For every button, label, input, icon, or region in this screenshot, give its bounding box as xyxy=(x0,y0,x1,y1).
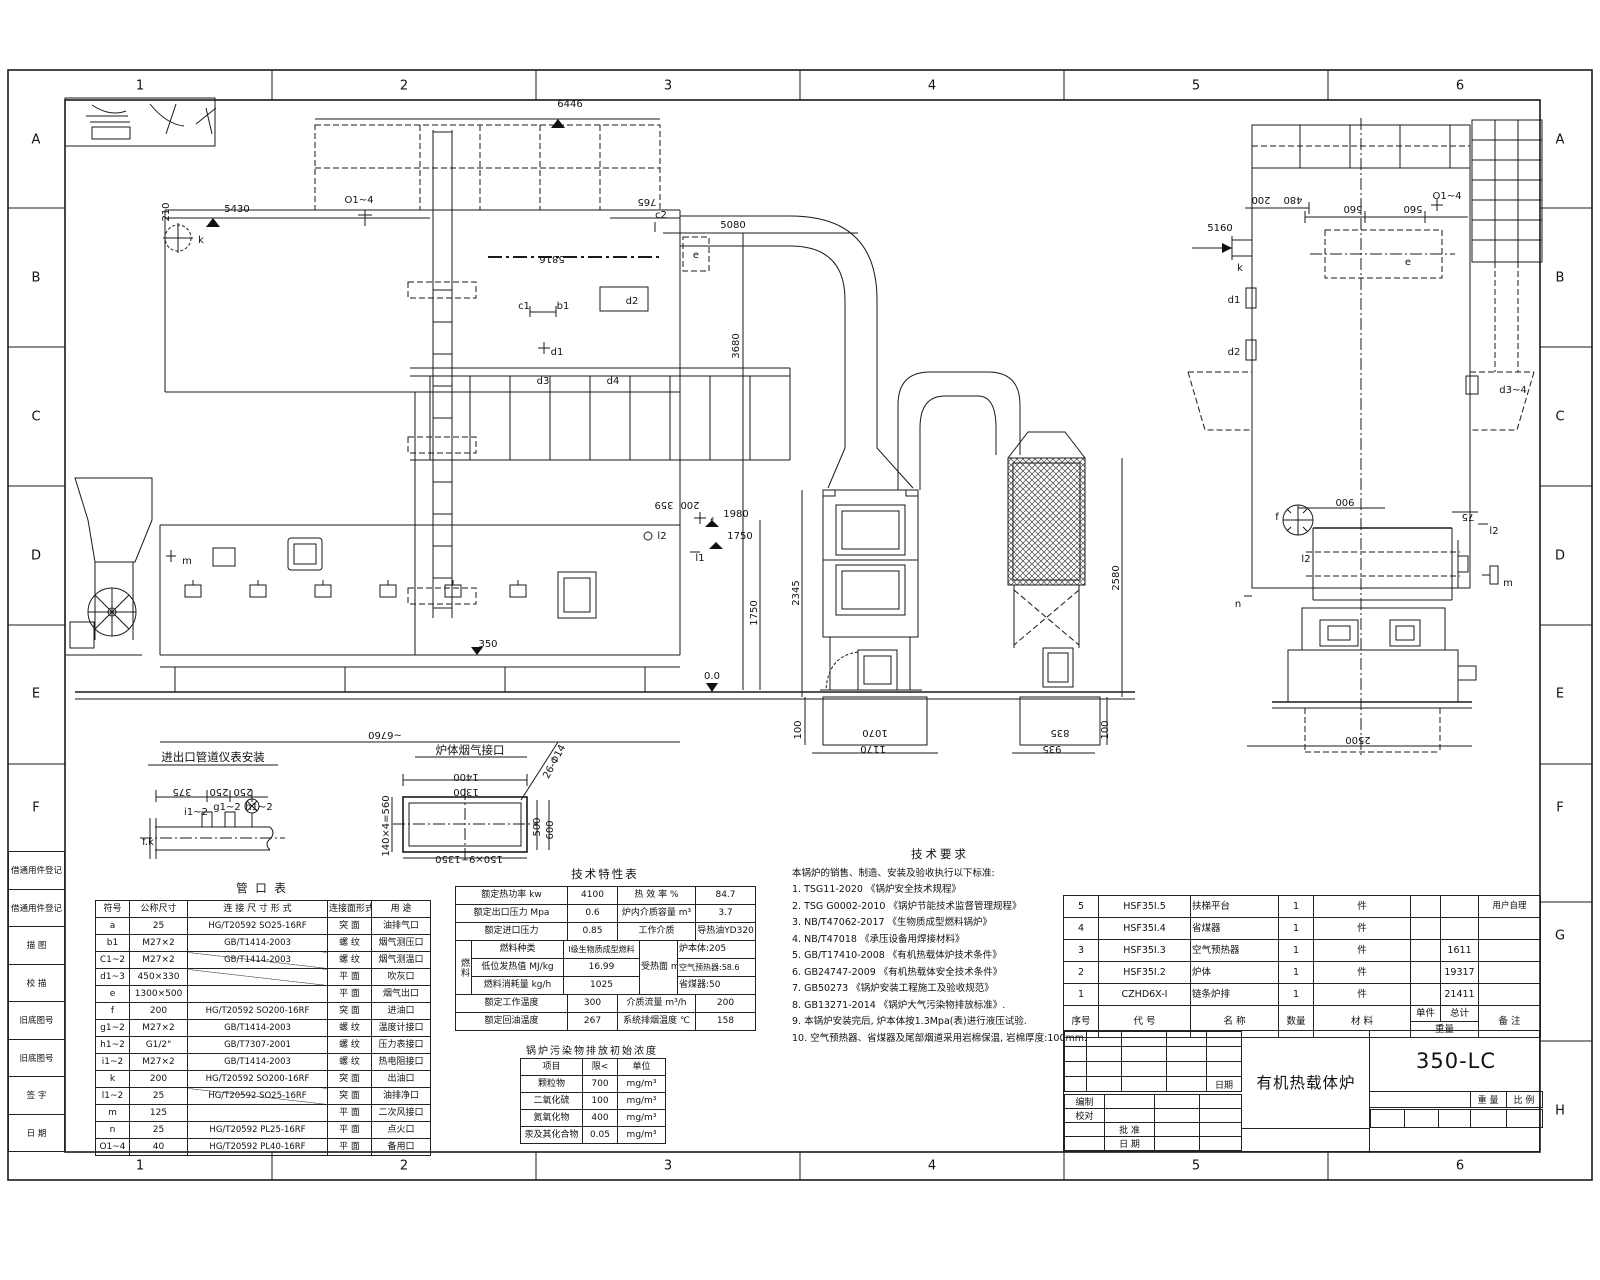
svg-text:2345: 2345 xyxy=(791,580,802,605)
grid-row: B xyxy=(32,271,41,286)
table-row: 颗粒物 700 mg/m³ xyxy=(521,1076,666,1093)
svg-text:k: k xyxy=(198,235,204,246)
bom-row: 2 HSF35I.2 炉体 1 件 19317 xyxy=(1064,962,1541,984)
svg-text:O1~4: O1~4 xyxy=(1433,191,1462,202)
weight-label: 重 量 xyxy=(1470,1092,1506,1108)
tech-req-item: 10. 空气预热器、省煤器及尾部烟道采用岩棉保温, 岩棉厚度:100mm. xyxy=(792,1031,1088,1048)
tech-req-title: 技术要求 xyxy=(792,846,1088,863)
svg-text:d1: d1 xyxy=(551,347,564,358)
svg-text:d4: d4 xyxy=(607,376,620,387)
svg-text:5816: 5816 xyxy=(539,253,564,264)
tech-req-item: 3. NB/T47062-2017 《生物质成型燃料锅炉》 xyxy=(792,915,1088,932)
svg-text:3680: 3680 xyxy=(731,333,742,358)
table-row: l1~2 25 HG/T20592 SO25-16RF 突 面 油排净口 xyxy=(96,1088,431,1105)
boiler-front-elevation xyxy=(1188,118,1542,758)
approved-label: 批 准 xyxy=(1105,1123,1155,1137)
svg-text:375: 375 xyxy=(172,786,191,797)
fuel-group-label: 燃料 xyxy=(456,941,472,995)
svg-text:75: 75 xyxy=(1462,511,1475,522)
svg-text:100: 100 xyxy=(793,720,804,739)
svg-text:f.k: f.k xyxy=(142,837,154,848)
spec-table: 额定热功率 kw4100热 效 率 %84.7 额定出口压力 Mpa0.6炉内介… xyxy=(455,886,756,1031)
svg-text:h1~2: h1~2 xyxy=(245,802,272,813)
tech-req-item: 5. GB/T17410-2008 《有机热载体炉技术条件》 xyxy=(792,948,1088,965)
margin-field: 借通用件登记 xyxy=(8,889,65,928)
emission-table: 项目 限< 单位 颗粒物 700 mg/m³ 二氧化硫 100 mg/m³ xyxy=(520,1058,666,1144)
tech-req-item: 2. TSG G0002-2010 《锅炉节能技术监督管理规程》 xyxy=(792,899,1088,916)
table-row: e 1300×500 平 面 烟气出口 xyxy=(96,986,431,1003)
table-row: n 25 HG/T20592 PL25-16RF 平 面 点火口 xyxy=(96,1122,431,1139)
svg-text:d3: d3 xyxy=(537,376,550,387)
date2-label: 日 期 xyxy=(1105,1137,1155,1151)
svg-text:1070: 1070 xyxy=(862,727,887,738)
svg-text:1400: 1400 xyxy=(453,771,478,782)
svg-text:359: 359 xyxy=(654,499,673,510)
svg-text:835: 835 xyxy=(1050,727,1069,738)
table-row: a 25 HG/T20592 SO25-16RF 突 面 油排气口 xyxy=(96,918,431,935)
drawing-sheet: 6446 5816 5430 210 k 765 O1~4 c2 c1 b1 d… xyxy=(0,0,1600,1280)
heating-surface-label: 受热面 m² xyxy=(640,941,678,995)
pipe-table: 符号 公称尺寸 连 接 尺 寸 形 式 连接面形式 用 途 a 25 HG/T2… xyxy=(95,900,431,1156)
svg-text:1750: 1750 xyxy=(727,531,752,542)
svg-text:b1: b1 xyxy=(557,301,570,312)
svg-text:炉体烟气接口: 炉体烟气接口 xyxy=(436,743,505,757)
grid-col: 5 xyxy=(1192,79,1200,94)
table-row: k 200 HG/T20592 SO200-16RF 突 面 出油口 xyxy=(96,1071,431,1088)
svg-text:~6760: ~6760 xyxy=(368,729,402,740)
svg-text:5430: 5430 xyxy=(224,204,249,215)
grid-col: 4 xyxy=(928,79,936,94)
svg-text:140×4=560: 140×4=560 xyxy=(381,795,392,856)
svg-text:l2: l2 xyxy=(1489,526,1498,537)
grid-row: D xyxy=(31,549,41,564)
svg-text:i1~2: i1~2 xyxy=(184,807,208,818)
svg-text:1980: 1980 xyxy=(723,509,748,520)
bom-table: 5 HSF35I.5 扶梯平台 1 件 用户自理 4 HSF35I.4 省煤器 … xyxy=(1063,895,1541,1038)
table-row: 汞及其化合物 0.05 mg/m³ xyxy=(521,1127,666,1144)
grid-row: E xyxy=(32,687,40,702)
svg-text:d3~4: d3~4 xyxy=(1499,385,1526,396)
spec-table-title: 技术特性表 xyxy=(571,866,639,882)
grid-row: A xyxy=(32,133,41,148)
table-row: O1~4 40 HG/T20592 PL40-16RF 平 面 备用口 xyxy=(96,1139,431,1156)
pipe-table-header: 符号 公称尺寸 连 接 尺 寸 形 式 连接面形式 用 途 xyxy=(96,901,431,918)
grid-col: 6 xyxy=(1456,79,1464,94)
svg-text:200: 200 xyxy=(680,499,699,510)
svg-text:350: 350 xyxy=(478,639,497,650)
technical-requirements: 技术要求 本锅炉的销售、制造、安装及验收执行以下标准: 1. TSG11-202… xyxy=(792,846,1088,1047)
table-row: b1 M27×2 GB/T1414-2003 螺 纹 烟气测压口 xyxy=(96,935,431,952)
table-row: C1~2 M27×2 GB/T1414-2003 螺 纹 烟气测温口 xyxy=(96,952,431,969)
svg-text:d2: d2 xyxy=(626,296,639,307)
tech-req-item: 6. GB24747-2009 《有机热载体安全技术条件》 xyxy=(792,965,1088,982)
svg-text:2500: 2500 xyxy=(1345,734,1370,745)
scale-label: 比 例 xyxy=(1506,1092,1542,1108)
svg-text:l2: l2 xyxy=(657,531,666,542)
table-row: m 125 平 面 二次风接口 xyxy=(96,1105,431,1122)
svg-text:O1~4: O1~4 xyxy=(345,195,374,206)
grid-col: 2 xyxy=(400,1159,408,1174)
flue-interface-detail xyxy=(392,742,558,862)
svg-text:500: 500 xyxy=(532,817,543,836)
svg-text:100: 100 xyxy=(1100,720,1111,739)
pipe-table-title: 管 口 表 xyxy=(236,880,288,896)
svg-text:200: 200 xyxy=(1251,194,1270,205)
tech-req-item: 4. NB/T47018 《承压设备用焊接材料》 xyxy=(792,932,1088,949)
svg-text:250: 250 xyxy=(209,786,228,797)
svg-text:e: e xyxy=(693,250,699,261)
svg-text:l1: l1 xyxy=(695,553,704,564)
grid-col: 3 xyxy=(664,1159,672,1174)
svg-text:6446: 6446 xyxy=(557,99,582,110)
table-row: g1~2 M27×2 GB/T1414-2003 螺 纹 温度计接口 xyxy=(96,1020,431,1037)
grid-row: A xyxy=(1556,133,1565,148)
svg-text:2580: 2580 xyxy=(1111,565,1122,590)
grid-row: D xyxy=(1555,549,1565,564)
svg-text:d2: d2 xyxy=(1228,347,1241,358)
margin-field: 描 图 xyxy=(8,926,65,965)
svg-text:d1: d1 xyxy=(1228,295,1241,306)
air-preheater xyxy=(820,490,927,745)
svg-text:150×9=1350: 150×9=1350 xyxy=(435,853,503,864)
svg-text:1300: 1300 xyxy=(453,786,478,797)
bom-row: 5 HSF35I.5 扶梯平台 1 件 用户自理 xyxy=(1064,896,1541,918)
svg-text:1750: 1750 xyxy=(749,600,760,625)
grid-col: 2 xyxy=(400,79,408,94)
bom-row: 4 HSF35I.4 省煤器 1 件 xyxy=(1064,918,1541,940)
svg-text:m: m xyxy=(1503,578,1513,589)
grid-row: F xyxy=(32,801,39,816)
margin-field: 借通用件登记 xyxy=(8,851,65,890)
svg-text:560: 560 xyxy=(1343,203,1362,214)
checked-label: 校对 xyxy=(1065,1109,1105,1123)
tech-req-item: 7. GB50273 《锅炉安装工程施工及验收规范》 xyxy=(792,981,1088,998)
margin-field: 旧底图号 xyxy=(8,1039,65,1078)
dimension-labels: 6446 5816 5430 210 k 765 O1~4 c2 c1 b1 d… xyxy=(142,99,1527,864)
svg-text:c2: c2 xyxy=(655,210,667,221)
svg-text:250: 250 xyxy=(233,786,252,797)
svg-text:900: 900 xyxy=(1335,496,1354,507)
prepared-label: 编制 xyxy=(1065,1095,1105,1109)
title-block: 日期 编制 校对 批 准 日 期 350-LC 有机热载体炉 重 量 比 例 xyxy=(1063,1030,1540,1152)
margin-field: 签 字 xyxy=(8,1076,65,1115)
grid-col: 1 xyxy=(136,79,144,94)
svg-text:765: 765 xyxy=(637,196,656,207)
table-row: 二氧化硫 100 mg/m³ xyxy=(521,1093,666,1110)
grid-col: 3 xyxy=(664,79,672,94)
svg-text:n: n xyxy=(1235,599,1241,610)
svg-text:f: f xyxy=(710,517,714,528)
svg-text:600: 600 xyxy=(545,820,556,839)
svg-text:1170: 1170 xyxy=(860,743,885,754)
margin-field: 校 描 xyxy=(8,964,65,1003)
svg-text:480: 480 xyxy=(1283,194,1302,205)
svg-text:k: k xyxy=(1237,263,1243,274)
svg-text:e: e xyxy=(1405,257,1411,268)
grid-col: 6 xyxy=(1456,1159,1464,1174)
bom-row: 1 CZHD6X-I 链条炉排 1 件 21411 xyxy=(1064,984,1541,1006)
svg-text:5080: 5080 xyxy=(720,220,745,231)
tech-req-intro: 本锅炉的销售、制造、安装及验收执行以下标准: xyxy=(792,866,1088,883)
svg-text:5160: 5160 xyxy=(1207,223,1232,234)
tech-req-item: 8. GB13271-2014 《锅炉大气污染物排放标准》. xyxy=(792,998,1088,1015)
grid-row: E xyxy=(1556,687,1564,702)
table-row: f 200 HG/T20592 SO200-16RF 突 面 进油口 xyxy=(96,1003,431,1020)
date-label: 日期 xyxy=(1207,1077,1242,1092)
drawing-number: 350-LC xyxy=(1369,1031,1542,1092)
table-row: i1~2 M27×2 GB/T1414-2003 螺 纹 热电阻接口 xyxy=(96,1054,431,1071)
table-row: 氮氧化物 400 mg/m³ xyxy=(521,1110,666,1127)
svg-text:f: f xyxy=(1275,512,1279,523)
grid-row: B xyxy=(1556,271,1565,286)
tech-req-item: 1. TSG11-2020 《锅炉安全技术规程》 xyxy=(792,882,1088,899)
svg-text:210: 210 xyxy=(161,202,172,221)
svg-text:l2: l2 xyxy=(1301,554,1310,565)
margin-field: 旧底图号 xyxy=(8,1001,65,1040)
margin-field: 日 期 xyxy=(8,1114,65,1153)
grid-row: G xyxy=(1555,929,1565,944)
grid-col: 4 xyxy=(928,1159,936,1174)
grid-col: 5 xyxy=(1192,1159,1200,1174)
emission-table-title: 锅炉污染物排放初始浓度 xyxy=(526,1042,658,1057)
svg-text:g1~2: g1~2 xyxy=(213,802,240,813)
svg-text:进出口管道仪表安装: 进出口管道仪表安装 xyxy=(161,750,265,764)
approval-stamp xyxy=(65,98,216,146)
margin-fields: 借通用件登记借通用件登记描 图校 描旧底图号旧底图号签 字日 期 xyxy=(8,852,65,1152)
bom-row: 3 HSF35I.3 空气预热器 1 件 1611 xyxy=(1064,940,1541,962)
svg-text:0.0: 0.0 xyxy=(704,671,720,682)
grid-row: H xyxy=(1555,1104,1565,1119)
grid-row: C xyxy=(1555,410,1564,425)
svg-text:935: 935 xyxy=(1042,743,1061,754)
grid-row: F xyxy=(1556,801,1563,816)
grid-row: C xyxy=(31,410,40,425)
svg-text:c1: c1 xyxy=(518,301,530,312)
tech-req-item: 9. 本锅炉安装完后, 炉本体按1.3Mpa(表)进行液压试验. xyxy=(792,1014,1088,1031)
product-title: 有机热载体炉 xyxy=(1241,1071,1371,1093)
svg-text:560: 560 xyxy=(1403,203,1422,214)
dust-collector xyxy=(805,432,1107,753)
grid-col: 1 xyxy=(136,1159,144,1174)
svg-text:m: m xyxy=(182,556,192,567)
table-row: h1~2 G1/2" GB/T7307-2001 螺 纹 压力表接口 xyxy=(96,1037,431,1054)
table-row: d1~3 450×330 平 面 吹灰口 xyxy=(96,969,431,986)
